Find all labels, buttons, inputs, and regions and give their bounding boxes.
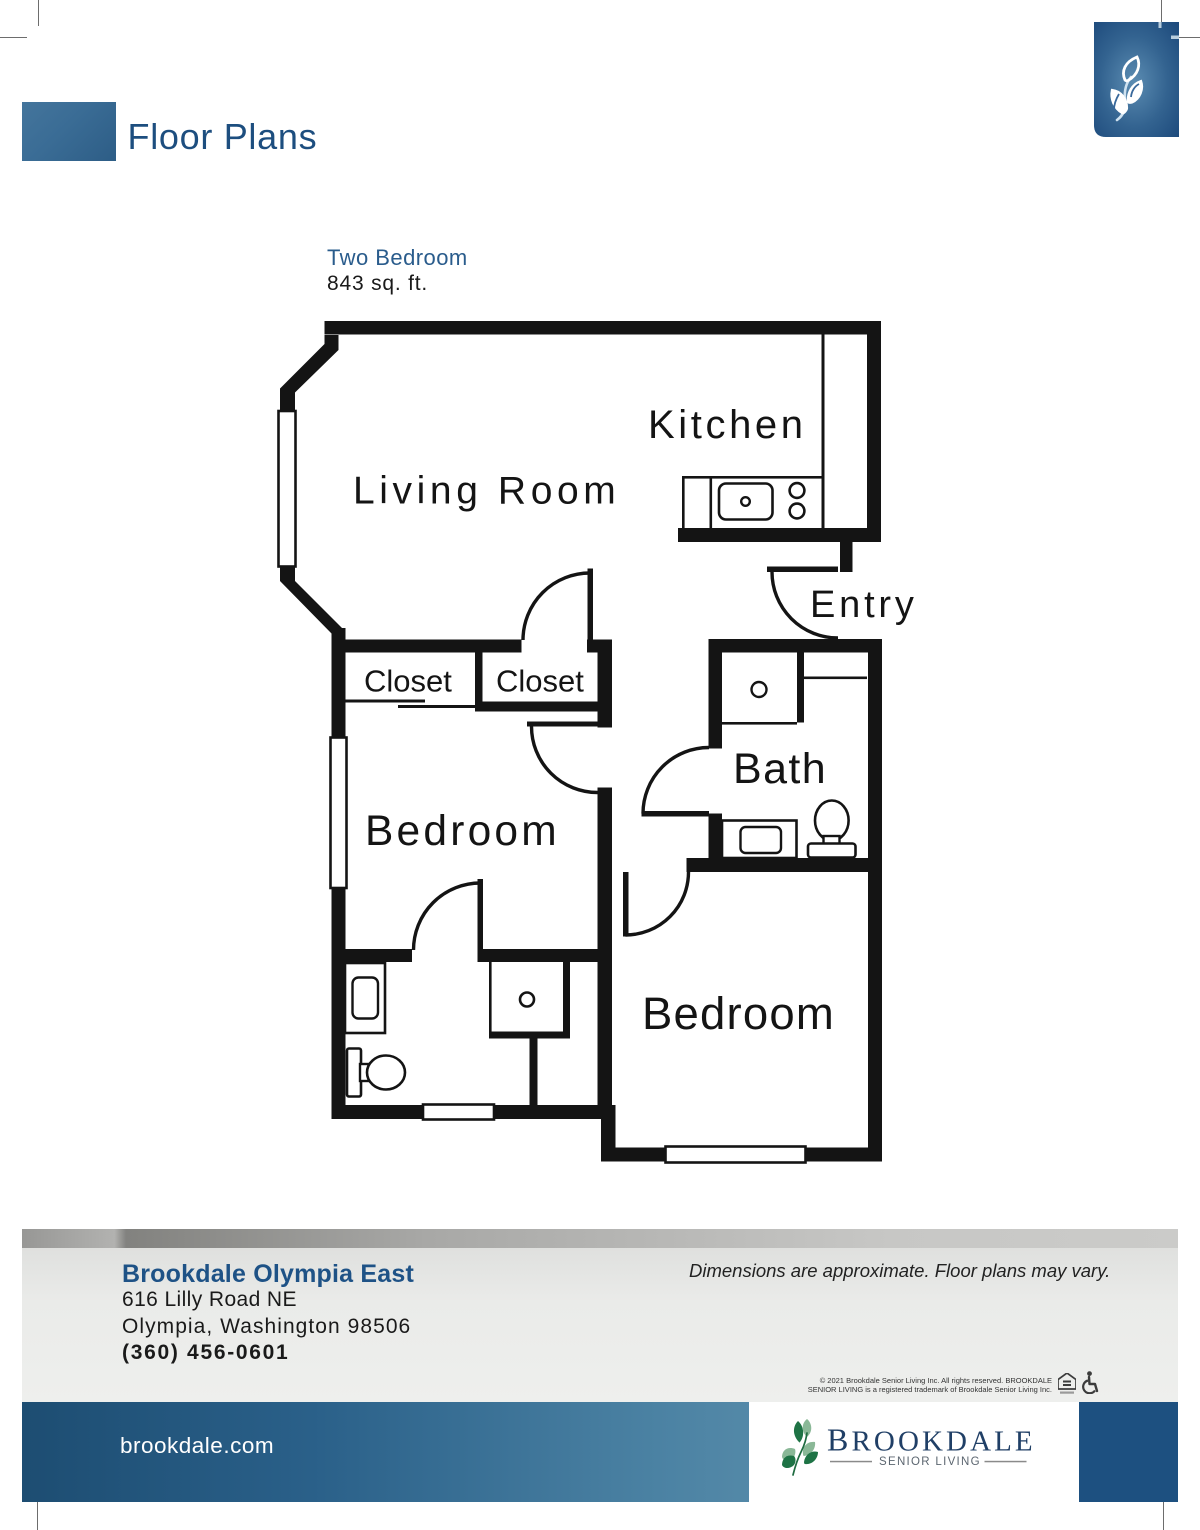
svg-text:Bedroom: Bedroom [642,988,835,1039]
svg-text:Closet: Closet [364,664,452,699]
svg-text:BROOKDALE: BROOKDALE [827,1422,1036,1458]
svg-text:Entry: Entry [810,584,918,626]
svg-text:Bath: Bath [733,745,827,793]
svg-text:SENIOR LIVING: SENIOR LIVING [879,1456,981,1468]
svg-text:Bedroom: Bedroom [365,808,560,855]
svg-text:Kitchen: Kitchen [648,403,807,447]
svg-text:Closet: Closet [496,664,584,699]
svg-text:Living Room: Living Room [353,470,620,513]
